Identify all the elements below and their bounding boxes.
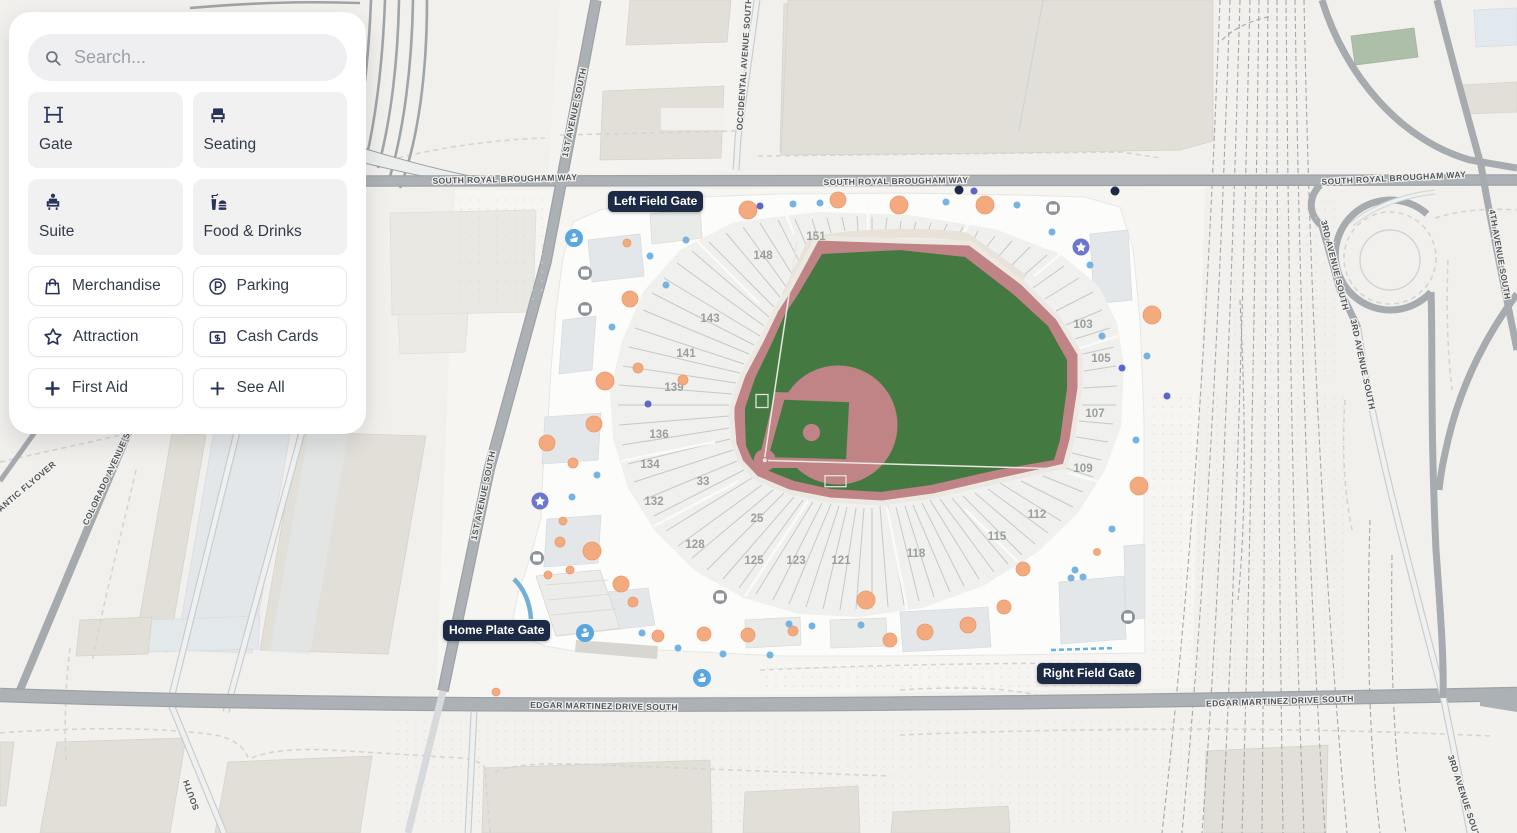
svg-text:105: 105: [1091, 353, 1111, 365]
svg-text:107: 107: [1085, 408, 1104, 420]
svg-text:125: 125: [744, 555, 764, 567]
svg-text:33: 33: [697, 476, 710, 488]
svg-text:141: 141: [676, 348, 696, 360]
svg-text:151: 151: [806, 231, 826, 243]
svg-text:118: 118: [907, 548, 926, 560]
svg-text:128: 128: [685, 539, 705, 551]
svg-text:136: 136: [649, 429, 668, 441]
svg-text:103: 103: [1073, 319, 1092, 331]
svg-text:121: 121: [831, 555, 851, 567]
svg-text:123: 123: [786, 555, 805, 567]
svg-text:109: 109: [1073, 463, 1092, 475]
svg-text:115: 115: [988, 531, 1007, 543]
svg-text:143: 143: [700, 313, 719, 325]
svg-text:25: 25: [751, 513, 764, 525]
svg-text:132: 132: [644, 496, 663, 508]
svg-text:112: 112: [1028, 509, 1047, 521]
svg-text:148: 148: [753, 250, 773, 262]
svg-text:134: 134: [640, 459, 660, 471]
